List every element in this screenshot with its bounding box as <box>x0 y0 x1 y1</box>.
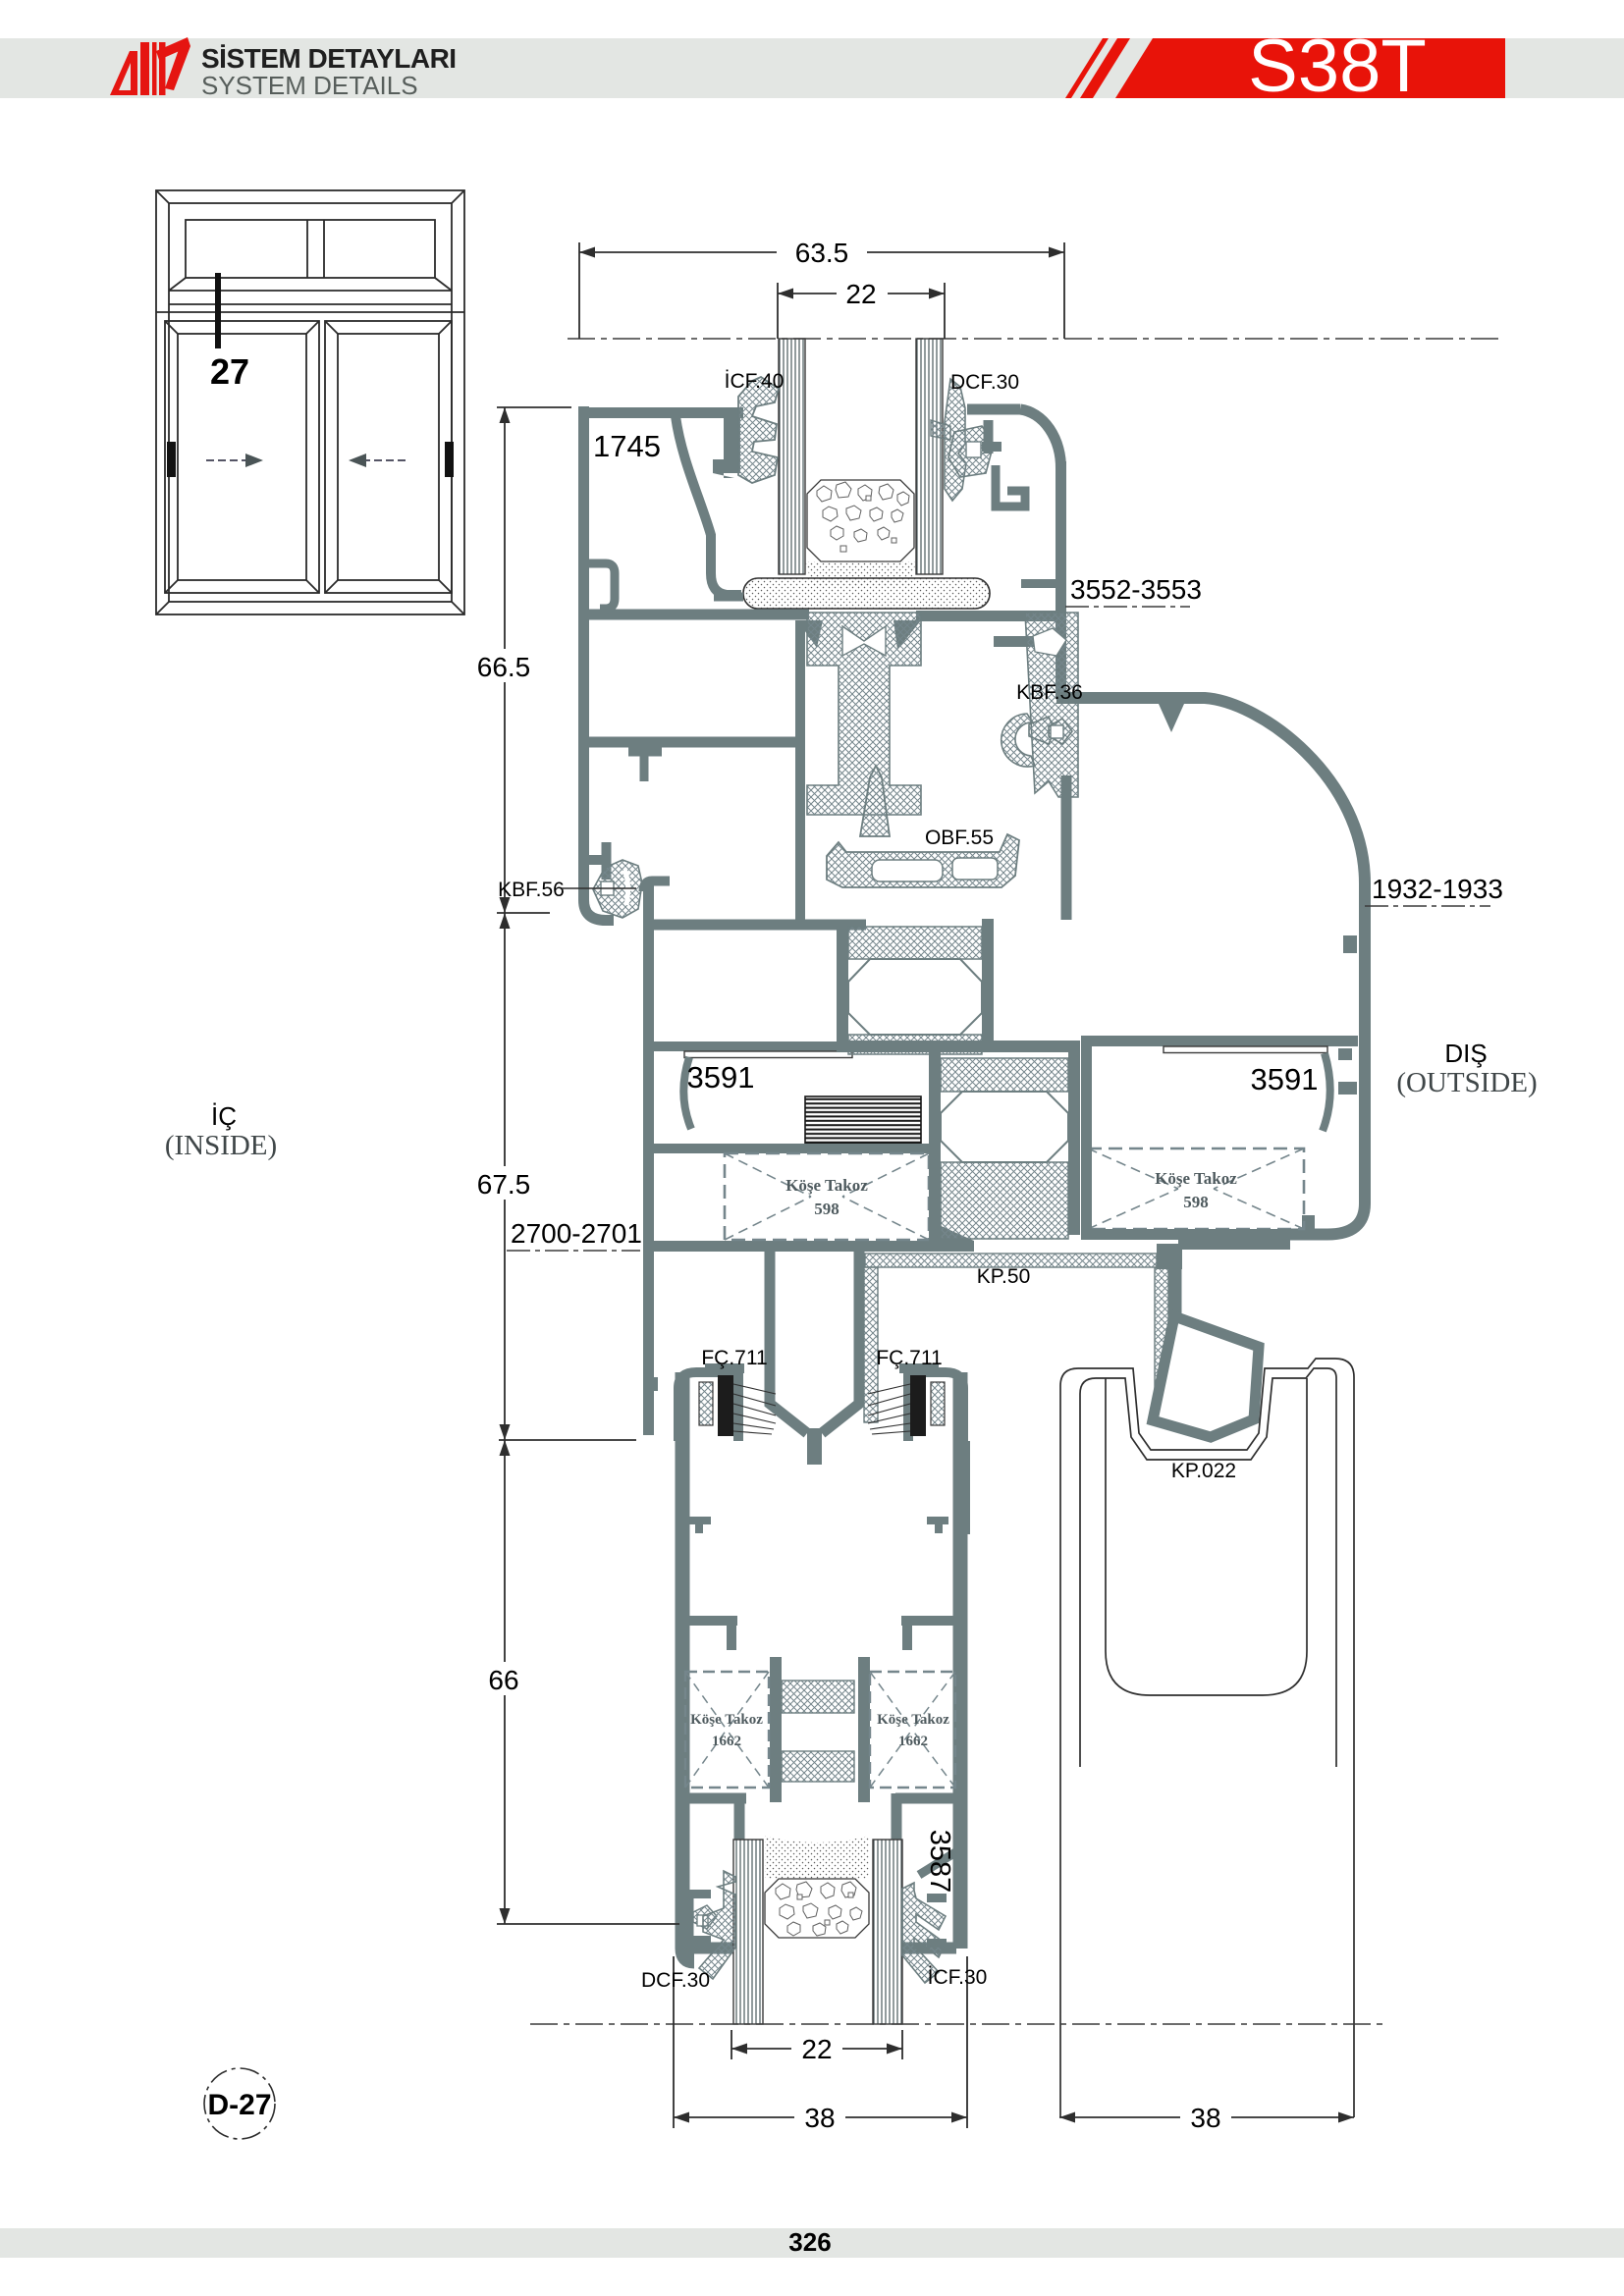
svg-text:DCF.30: DCF.30 <box>950 371 1019 394</box>
svg-text:Köşe Takoz: Köşe Takoz <box>877 1712 949 1728</box>
svg-text:598: 598 <box>1183 1193 1209 1211</box>
svg-text:66: 66 <box>488 1665 518 1695</box>
svg-text:1662: 1662 <box>898 1734 928 1749</box>
svg-text:3591: 3591 <box>1251 1062 1319 1096</box>
svg-text:1932-1933: 1932-1933 <box>1372 874 1503 904</box>
svg-text:KP.50: KP.50 <box>977 1265 1031 1288</box>
svg-text:1745: 1745 <box>593 429 661 463</box>
svg-text:22: 22 <box>845 279 876 309</box>
svg-text:38: 38 <box>804 2103 835 2133</box>
svg-text:(OUTSIDE): (OUTSIDE) <box>1396 1067 1537 1098</box>
svg-text:3591: 3591 <box>687 1060 755 1095</box>
svg-text:İCF.30: İCF.30 <box>928 1966 988 1989</box>
svg-text:63.5: 63.5 <box>795 238 849 268</box>
svg-text:1662: 1662 <box>712 1734 741 1749</box>
svg-text:SYSTEM DETAILS: SYSTEM DETAILS <box>201 71 418 100</box>
svg-text:38: 38 <box>1190 2103 1220 2133</box>
svg-text:2700-2701: 2700-2701 <box>511 1218 642 1249</box>
svg-text:D-27: D-27 <box>207 2089 271 2121</box>
svg-text:326: 326 <box>788 2227 831 2257</box>
svg-text:S38T: S38T <box>1248 25 1427 108</box>
svg-text:Köşe Takoz: Köşe Takoz <box>1155 1169 1237 1188</box>
svg-text:DCF.30: DCF.30 <box>641 1969 710 1992</box>
svg-text:OBF.55: OBF.55 <box>925 827 994 849</box>
svg-text:27: 27 <box>210 351 249 392</box>
svg-text:KBF.56: KBF.56 <box>498 879 565 901</box>
svg-text:66.5: 66.5 <box>477 652 531 682</box>
svg-text:KBF.36: KBF.36 <box>1016 681 1083 704</box>
svg-text:67.5: 67.5 <box>477 1169 531 1200</box>
svg-text:FÇ.711: FÇ.711 <box>876 1347 942 1369</box>
svg-text:İCF.40: İCF.40 <box>725 370 785 393</box>
svg-text:FÇ.711: FÇ.711 <box>701 1347 767 1369</box>
svg-text:Köşe Takoz: Köşe Takoz <box>690 1712 763 1728</box>
svg-text:22: 22 <box>801 2034 832 2064</box>
svg-text:598: 598 <box>814 1200 839 1218</box>
svg-text:(INSIDE): (INSIDE) <box>165 1130 277 1161</box>
svg-text:KP.022: KP.022 <box>1171 1460 1236 1482</box>
svg-text:SİSTEM DETAYLARI: SİSTEM DETAYLARI <box>201 43 457 74</box>
svg-text:3552-3553: 3552-3553 <box>1070 574 1202 605</box>
svg-text:İÇ: İÇ <box>211 1101 237 1131</box>
svg-text:DIŞ: DIŞ <box>1444 1039 1487 1068</box>
svg-text:3587: 3587 <box>924 1830 955 1894</box>
svg-text:Köşe Takoz: Köşe Takoz <box>785 1176 868 1195</box>
